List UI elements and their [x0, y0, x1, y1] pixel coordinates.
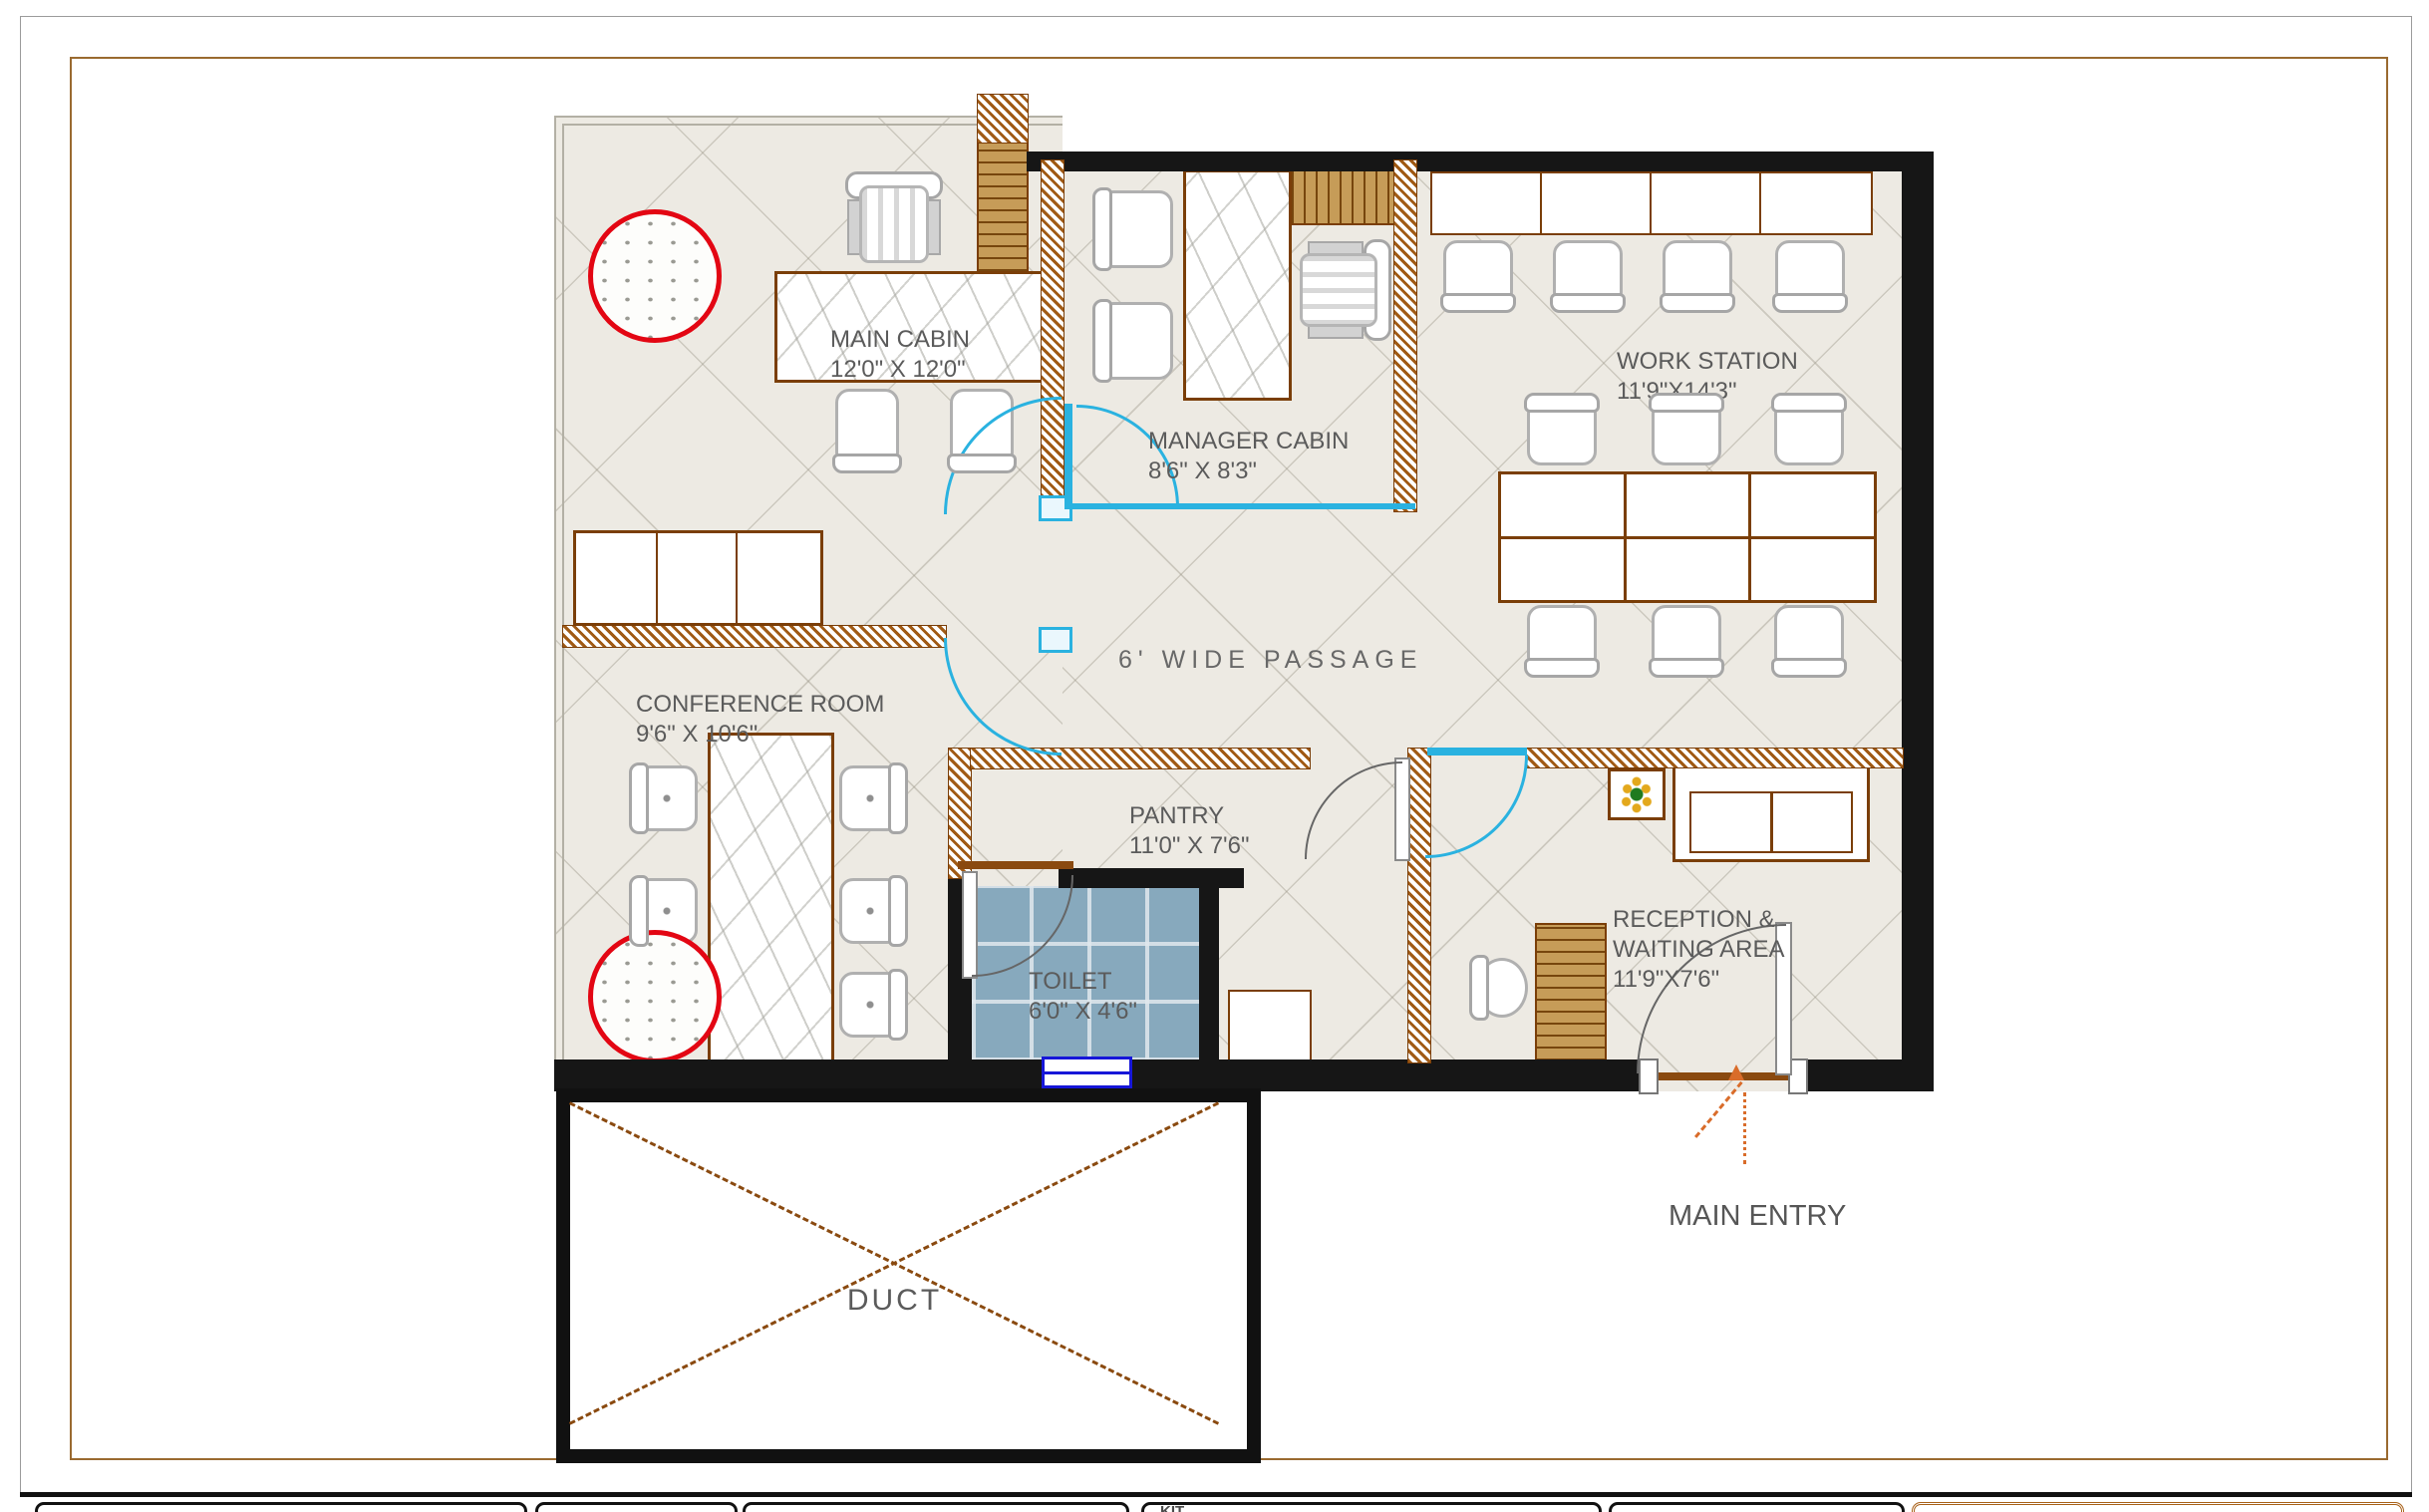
label-main-cabin: MAIN CABIN 12'0" X 12'0" [830, 295, 970, 415]
reception-chair [1471, 953, 1533, 1023]
office-chair [1522, 600, 1602, 676]
title-block-divider [20, 1492, 2412, 1497]
workstation-desk [1650, 171, 1763, 235]
counter [1228, 990, 1312, 1065]
executive-chair [847, 175, 941, 273]
room-name: MAIN CABIN [830, 326, 970, 353]
room-name: 6' WIDE PASSAGE [1118, 646, 1422, 674]
room-dims: 8'6" X 8'3" [1148, 456, 1349, 486]
workstation-desk [1430, 171, 1544, 235]
workstation-desk [1540, 171, 1654, 235]
title-block-cell [743, 1502, 1129, 1512]
workstation-table [1498, 471, 1877, 603]
office-chair [1769, 600, 1849, 676]
label-duct: DUCT [556, 1244, 1233, 1319]
wall-segment [977, 94, 1029, 144]
office-chair [1522, 395, 1602, 470]
decor-planter [588, 930, 722, 1063]
door-leaf-reception [1427, 748, 1527, 756]
room-name: CONFERENCE ROOM [636, 691, 884, 718]
wall-pantry-left [948, 748, 972, 879]
executive-chair [1290, 241, 1387, 339]
guest-chair [1094, 297, 1178, 385]
floor-plan-page: MAIN CABIN 12'0" X 12'0" MANAGER CABIN 8… [0, 0, 2429, 1512]
conference-chair [834, 967, 906, 1043]
door-leaf-manager [1064, 404, 1072, 509]
wall-pantry-top [970, 748, 1311, 769]
office-chair [1770, 235, 1850, 311]
wall-exterior-top [1027, 151, 1934, 171]
room-name: TOILET [1029, 968, 1112, 995]
label-passage: 6' WIDE PASSAGE [1118, 614, 1422, 677]
label-manager-cabin: MANAGER CABIN 8'6" X 8'3" [1148, 397, 1349, 516]
entry-threshold [1647, 1072, 1794, 1080]
glass-wall-line [562, 124, 564, 1062]
conference-chair [834, 873, 906, 949]
title-block-cell [1609, 1502, 1905, 1512]
label-conference-room: CONFERENCE ROOM 9'6" X 10'6" [636, 660, 884, 779]
room-name: PANTRY [1129, 802, 1224, 829]
wall-reception-top [1525, 748, 1904, 768]
office-chair [1548, 235, 1628, 311]
manager-desk [1183, 169, 1292, 401]
room-dims: 12'0" X 12'0" [830, 355, 970, 385]
workstation-desk [1759, 171, 1873, 235]
office-chair [1438, 235, 1518, 311]
wall-manager-right [1393, 159, 1417, 512]
room-dims: 11'0" X 7'6" [1129, 831, 1250, 861]
glass-wall-line [554, 116, 556, 1062]
guest-chair [1094, 185, 1178, 273]
room-name: MANAGER CABIN [1148, 428, 1349, 454]
office-chair [1647, 600, 1726, 676]
label-main-entry: MAIN ENTRY [1669, 1162, 1846, 1235]
wall-exterior-bottom [1794, 1059, 1934, 1091]
room-name: WORK STATION [1617, 348, 1798, 375]
room-name: RECEPTION & WAITING AREA [1613, 906, 1784, 963]
annotation-text: MAIN ENTRY [1669, 1200, 1846, 1232]
reception-desk [1535, 923, 1607, 1074]
title-block-cell [1141, 1502, 1602, 1512]
title-block-cell [1912, 1502, 2404, 1512]
room-dims: 9'6" X 10'6" [636, 720, 884, 750]
entry-arrow-head [1728, 1064, 1744, 1080]
potted-plant [1608, 768, 1666, 820]
label-work-station: WORK STATION 11'9"X14'3" [1617, 317, 1798, 437]
wall-exterior-right [1902, 151, 1934, 1091]
toilet-wall [1199, 868, 1219, 1061]
label-reception: RECEPTION & WAITING AREA 11'9"X7'6" [1613, 875, 1784, 1025]
sideboard [573, 530, 823, 626]
door-threshold [958, 861, 1073, 869]
wall-conference-top [562, 625, 947, 648]
conference-table [708, 733, 834, 1074]
storage-cabinet [977, 140, 1029, 273]
room-dims: 6'0" X 4'6" [1029, 997, 1137, 1027]
office-chair [1658, 235, 1737, 311]
room-dims: 11'9"X7'6" [1613, 965, 1784, 995]
label-toilet: TOILET 6'0" X 4'6" [1029, 937, 1137, 1057]
waiting-sofa [1672, 762, 1870, 862]
label-pantry: PANTRY 11'0" X 7'6" [1129, 771, 1250, 891]
window [1042, 1057, 1132, 1088]
decor-planter [588, 209, 722, 343]
title-block-cell [35, 1502, 527, 1512]
title-block-cell [535, 1502, 738, 1512]
entry-arrow-shaft [1743, 1092, 1746, 1164]
room-name: DUCT [847, 1284, 942, 1317]
title-block-partial-text: KIT [1160, 1503, 1184, 1512]
